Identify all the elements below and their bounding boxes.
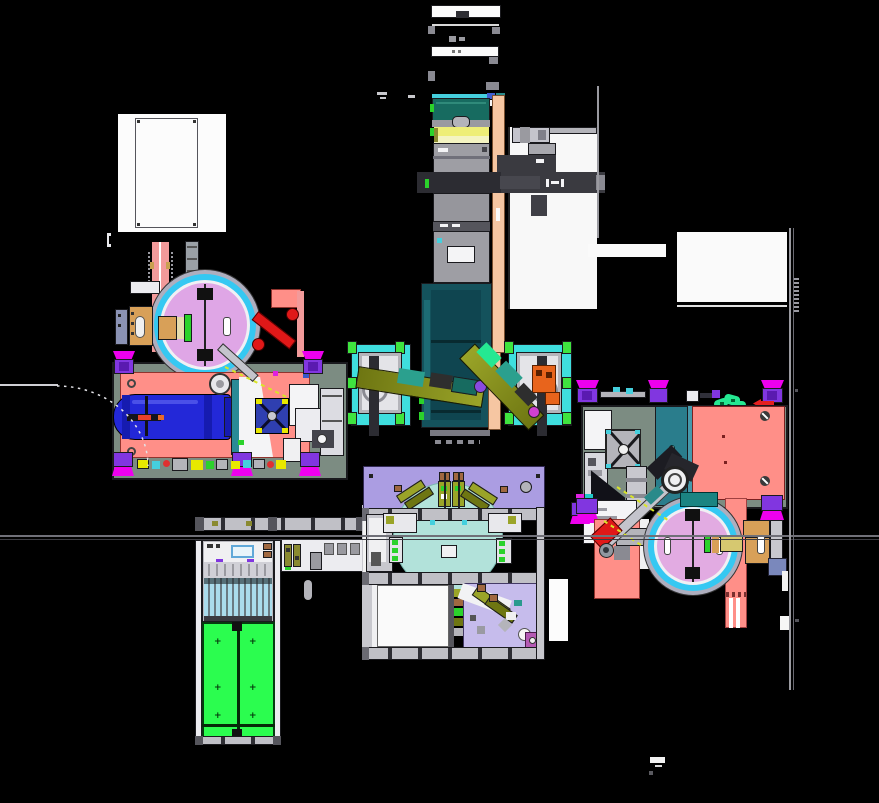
layout-lines [0,0,879,803]
cad-layout-canvas: + + + + + + [0,0,879,803]
door-swing-arc [0,384,170,479]
fence-line-mid [597,86,599,238]
vertical-label-ticks [794,278,799,314]
floor-line-sub [0,539,879,540]
floor-line-main [0,535,879,537]
fence-line-right-a [789,228,791,690]
